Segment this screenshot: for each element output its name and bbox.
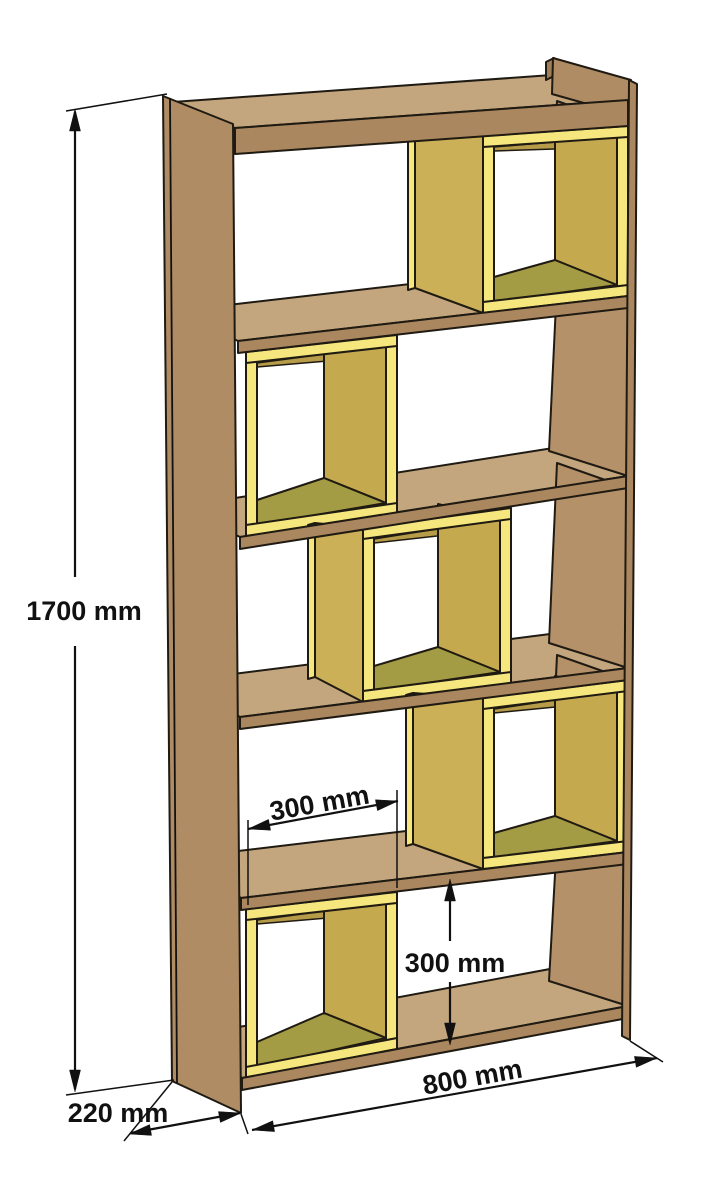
storage-box-5 [246, 888, 397, 1078]
dimension-arrowhead [634, 1056, 657, 1067]
bookshelf-drawing: 1700 mm 220 mm 800 mm 300 mm 300 mm [0, 0, 704, 1200]
dimension-arrowhead [70, 1070, 81, 1092]
box-front-right-edge [617, 126, 628, 296]
dimension-arrowhead [252, 1121, 275, 1132]
witness-line [241, 1114, 248, 1134]
box-inner-right-wall [555, 676, 617, 841]
dimension-height [66, 94, 174, 1095]
box-front-left-edge [363, 528, 374, 702]
box-outer-left-wall [415, 131, 483, 313]
box-front-left-edge [246, 909, 257, 1078]
box-inner-right-wall [555, 122, 617, 285]
box-left-wall-back-edge [308, 523, 315, 679]
storage-box-2 [246, 331, 397, 536]
compartment-height-dimension-label: 300 mm [405, 948, 506, 978]
dimension-arrowhead [375, 800, 398, 811]
box-left-wall-back-edge [406, 693, 413, 846]
storage-box-4 [406, 676, 628, 869]
height-dimension-label: 1700 mm [26, 596, 142, 626]
box-width-dimension-label: 300 mm [267, 780, 371, 827]
box-front-right-edge [386, 335, 397, 514]
bookshelf-diagram-page: 1700 mm 220 mm 800 mm 300 mm 300 mm [0, 0, 704, 1200]
box-inner-right-wall [324, 331, 386, 503]
witness-line [66, 94, 167, 111]
depth-dimension-label: 220 mm [68, 1098, 169, 1128]
bookshelf-structure [163, 58, 637, 1113]
box-outer-left-wall [315, 523, 363, 702]
witness-line [66, 1080, 174, 1095]
box-front-left-edge [483, 698, 494, 869]
box-front-right-edge [500, 508, 511, 683]
dimension-arrowhead [70, 109, 81, 131]
storage-box-1 [408, 122, 628, 313]
dimension-arrowhead [218, 1112, 241, 1123]
box-outer-left-wall [413, 693, 483, 869]
box-front-left-edge [246, 352, 257, 536]
box-inner-right-wall [438, 504, 500, 672]
left-side-panel [163, 96, 241, 1113]
width-dimension-label: 800 mm [420, 1054, 524, 1101]
dimension-arrowhead [248, 819, 271, 830]
box-front-left-edge [483, 136, 494, 313]
box-left-wall-back-edge [408, 131, 415, 290]
box-front-right-edge [386, 892, 397, 1049]
